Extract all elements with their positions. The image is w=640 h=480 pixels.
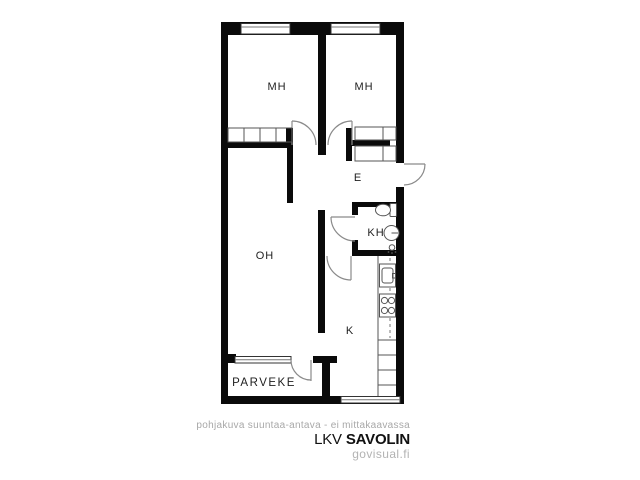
- bedroom1-door: [292, 121, 316, 145]
- wardrobe-bedroom1-icon: [228, 128, 292, 142]
- bedroom-separator-wall: [318, 35, 326, 155]
- room-label-bedroom-2: MH: [354, 81, 373, 93]
- kitchen-sink-icon: [380, 264, 396, 287]
- room-label-bedroom-1: MH: [267, 81, 286, 93]
- bedroom1-bottom-wall: [221, 142, 293, 148]
- bathroom-bottom-wall: [352, 250, 396, 256]
- hallway-closet-icon: [355, 146, 396, 161]
- floor-plan-page: MH MH E KH OH K PARVEKE pohjakuva suunta…: [0, 0, 640, 480]
- kitchen-livingroom-wall: [318, 210, 325, 333]
- room-label-balcony: PARVEKE: [232, 377, 296, 389]
- shower-icon: [388, 245, 397, 254]
- window-bedroom-1: [241, 24, 290, 35]
- wardrobe-bedroom2-icon: [355, 127, 396, 140]
- brand-prefix: LKV: [314, 431, 342, 448]
- room-label-bathroom: KH: [367, 227, 384, 239]
- brand-name: SAVOLIN: [346, 431, 410, 448]
- window-bedroom-2: [331, 24, 380, 35]
- room-label-kitchen: K: [346, 325, 354, 337]
- entrance-door: [404, 164, 425, 185]
- disclaimer-text: pohjakuva suuntaa-antava - ei mittakaava…: [196, 420, 410, 431]
- stove-icon: [380, 294, 396, 317]
- balcony-window: [235, 357, 291, 364]
- bathroom-sink-icon: [384, 226, 399, 241]
- window-kitchen: [341, 397, 400, 404]
- room-label-hallway: E: [354, 172, 362, 184]
- bedroom2-door-jamb: [346, 128, 352, 161]
- kitchen-door: [327, 256, 351, 280]
- right-wall-lower: [396, 187, 404, 404]
- right-wall-upper: [396, 35, 404, 163]
- fixtures: [228, 127, 399, 396]
- website-text: govisual.fi: [352, 447, 410, 461]
- toilet-icon: [376, 204, 397, 217]
- room-label-living-room: OH: [256, 250, 275, 262]
- livingroom-hall-wall: [287, 148, 293, 203]
- bathroom-left-wall-upper: [352, 202, 358, 215]
- brand-logo: LKVSAVOLIN: [314, 431, 410, 448]
- bathroom-door: [331, 217, 355, 241]
- floor-plan-drawing: MH MH E KH OH K PARVEKE: [0, 0, 640, 480]
- balcony-right-wall: [322, 356, 330, 404]
- left-wall: [221, 35, 228, 404]
